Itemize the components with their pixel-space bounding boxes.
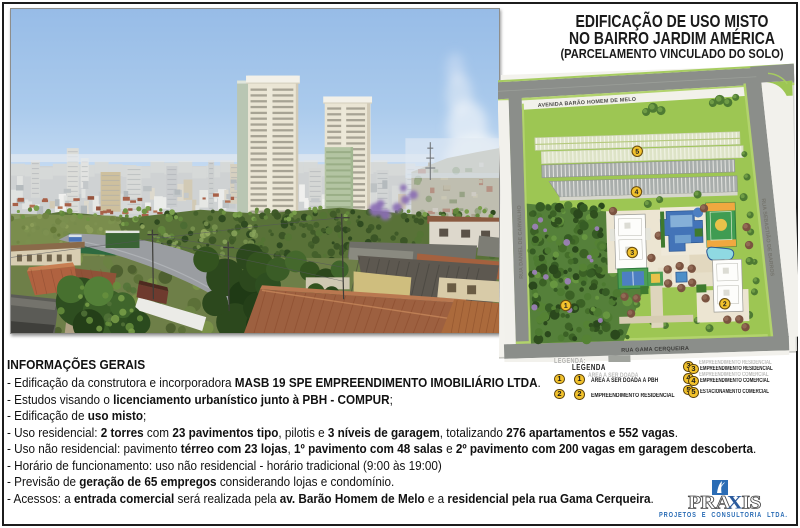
svg-text:1: 1 <box>564 303 568 310</box>
svg-text:PRA: PRA <box>688 493 731 514</box>
svg-text:PROJETOS E CONSULTORIA LTDA: PROJETOS E CONSULTORIA LTDA. <box>659 512 788 520</box>
svg-text:2: 2 <box>723 301 727 308</box>
svg-text:4: 4 <box>634 189 638 196</box>
svg-text:X: X <box>727 493 743 514</box>
svg-text:IS: IS <box>742 493 761 514</box>
svg-text:3: 3 <box>630 250 634 257</box>
svg-text:5: 5 <box>635 149 639 156</box>
